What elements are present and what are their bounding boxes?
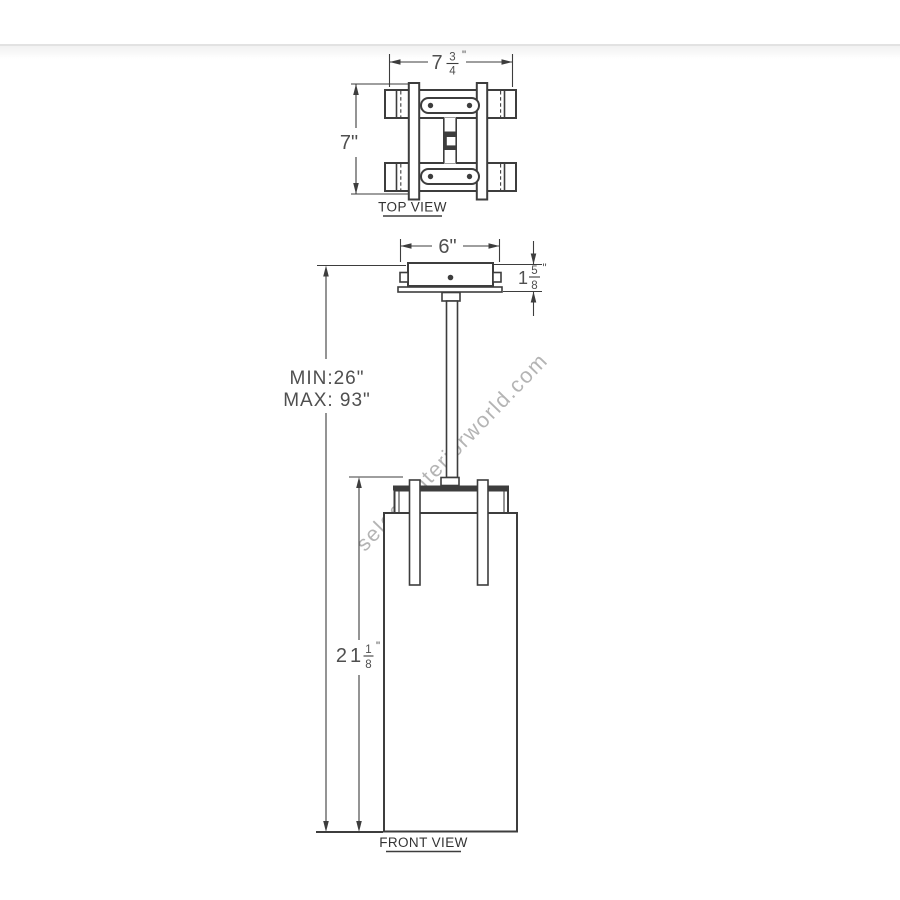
arrowhead-up — [353, 84, 359, 95]
shade-height-whole: 21 — [336, 645, 364, 667]
support-rod-left — [410, 480, 421, 585]
screw-icon — [467, 174, 472, 179]
canopy — [408, 263, 493, 286]
perforated-shade — [384, 513, 517, 832]
shade-height-denominator: 8 — [365, 659, 371, 671]
top-width-whole: 7 — [431, 52, 442, 74]
stem-rod — [447, 301, 458, 478]
arrowhead-up — [531, 292, 537, 303]
arrowhead-down — [353, 183, 359, 194]
shade-assembly — [384, 480, 517, 832]
top-view-body — [385, 83, 516, 200]
center-hub-hole — [447, 137, 456, 145]
cross-rail-left — [409, 83, 419, 200]
arrowhead-left — [401, 243, 412, 249]
front-view-label: FRONT VIEW — [379, 835, 468, 850]
technical-drawing: select-interiorworld.com 7 3 4 " — [0, 0, 900, 900]
canopy-width-value: 6" — [438, 236, 456, 258]
top-view-label: TOP VIEW — [378, 200, 447, 215]
shade-height-numerator: 1 — [365, 644, 371, 656]
suspension-min-value: MIN:26" — [290, 368, 365, 389]
stem-collar — [441, 478, 459, 486]
arrowhead-up — [323, 266, 329, 277]
shade-height-unit: " — [376, 641, 380, 653]
top-width-denominator: 4 — [449, 66, 456, 78]
top-view: 7 3 4 " 7" — [340, 50, 516, 216]
front-view: 6" 1 5 — [283, 236, 546, 852]
spec-sheet-page: select-interiorworld.com 7 3 4 " — [0, 0, 900, 900]
canopy-height-denominator: 8 — [531, 280, 537, 292]
top-width-unit: " — [462, 50, 466, 62]
canopy-height-dimension: 1 5 8 " — [494, 241, 547, 316]
canopy-plate — [398, 287, 502, 292]
arrowhead-down — [356, 821, 362, 832]
arrowhead-down — [323, 821, 329, 832]
arrowhead-down — [531, 254, 537, 265]
stem-fitting — [442, 293, 460, 302]
canopy-body — [398, 263, 502, 486]
top-view-width-dimension: 7 3 4 " — [390, 50, 513, 87]
canopy-width-dimension: 6" — [401, 236, 500, 262]
canopy-height-whole: 1 — [518, 268, 528, 288]
arrowhead-up — [356, 477, 362, 488]
canopy-tab-right — [493, 273, 501, 283]
canopy-height-unit: " — [543, 263, 547, 275]
arrowhead-right — [489, 243, 500, 249]
arrowhead-right — [502, 59, 513, 65]
screw-icon — [428, 103, 433, 108]
arrowhead-left — [390, 59, 401, 65]
canopy-tab-left — [400, 273, 408, 283]
canopy-height-numerator: 5 — [531, 265, 537, 277]
top-height-value: 7" — [340, 132, 358, 154]
screw-icon — [428, 174, 433, 179]
screw-icon — [467, 103, 472, 108]
suspension-max-value: MAX: 93" — [283, 390, 371, 411]
support-rod-right — [478, 480, 489, 585]
top-width-numerator: 3 — [449, 52, 455, 64]
canopy-screw-icon — [448, 275, 454, 281]
